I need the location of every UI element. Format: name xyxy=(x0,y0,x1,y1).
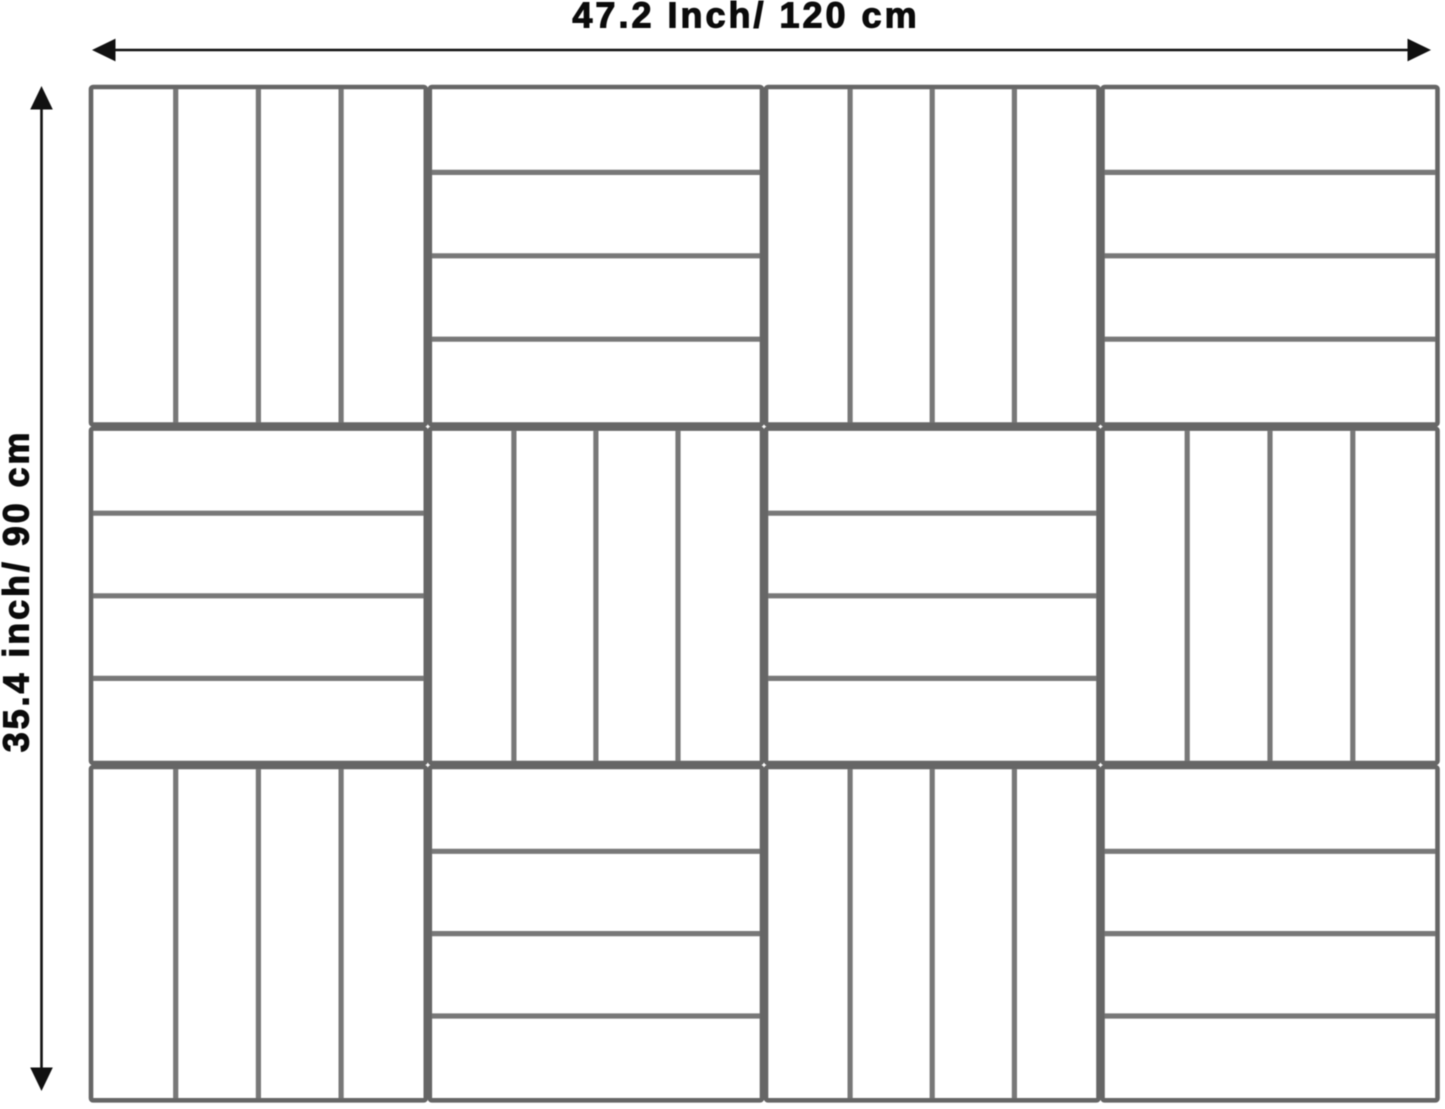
svg-text:47.2 Inch/ 120 cm: 47.2 Inch/ 120 cm xyxy=(572,0,919,36)
svg-text:35.4 inch/ 90 cm: 35.4 inch/ 90 cm xyxy=(0,430,37,753)
